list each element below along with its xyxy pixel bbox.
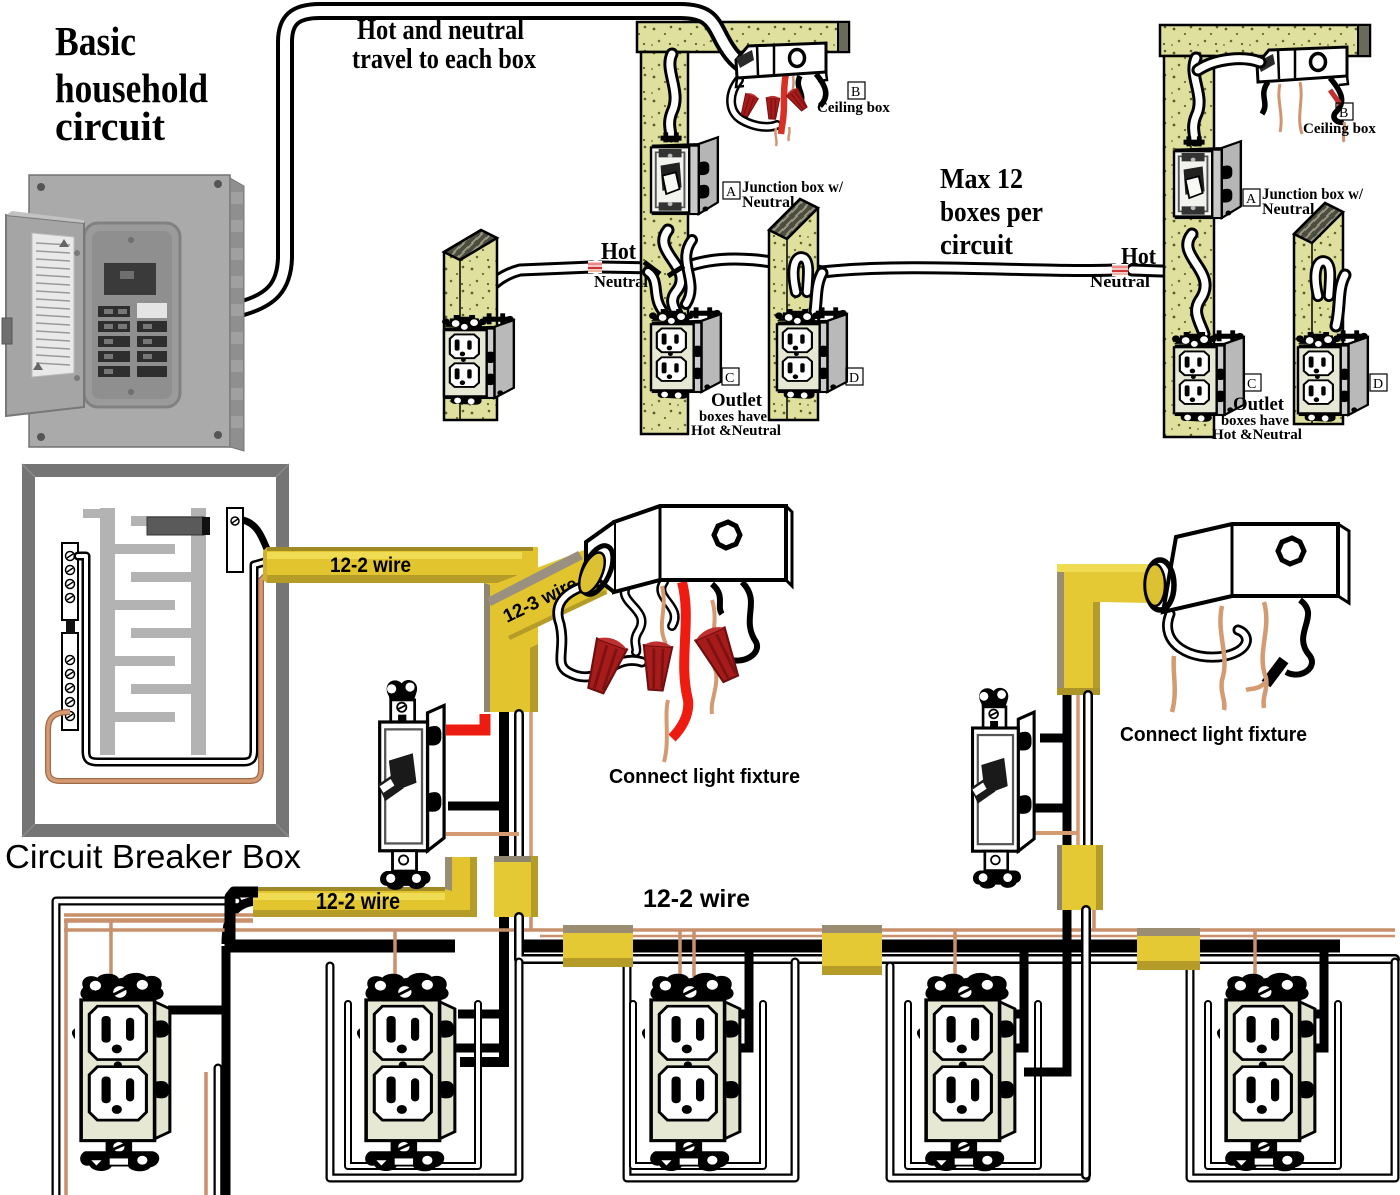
svg-text:D: D (849, 371, 859, 386)
svg-text:C: C (1247, 377, 1256, 392)
svg-text:A: A (726, 185, 737, 200)
svg-text:Hot: Hot (1121, 244, 1156, 270)
svg-text:Neutral: Neutral (742, 194, 795, 211)
svg-text:12-2 wire: 12-2 wire (643, 885, 750, 913)
svg-text:Max 12: Max 12 (940, 164, 1023, 195)
svg-text:Connect light fixture: Connect light fixture (1120, 723, 1307, 746)
svg-text:D: D (1373, 377, 1383, 392)
svg-text:12-2 wire: 12-2 wire (316, 888, 400, 914)
svg-text:Connect light fixture: Connect light fixture (609, 765, 800, 788)
svg-text:Ceiling box: Ceiling box (1303, 121, 1376, 137)
svg-text:Ceiling box: Ceiling box (817, 100, 890, 116)
svg-text:C: C (725, 371, 734, 386)
svg-text:circuit: circuit (940, 230, 1014, 261)
svg-text:circuit: circuit (55, 103, 165, 149)
svg-text:Basic: Basic (55, 18, 136, 64)
svg-text:A: A (1246, 192, 1257, 207)
svg-text:boxes per: boxes per (940, 197, 1043, 228)
svg-text:Circuit Breaker Box: Circuit Breaker Box (5, 838, 302, 875)
svg-text:Hot &Neutral: Hot &Neutral (691, 423, 781, 439)
svg-text:B: B (1339, 106, 1348, 121)
svg-text:B: B (851, 85, 860, 100)
svg-text:Outlet: Outlet (1233, 394, 1285, 415)
svg-text:Neutral: Neutral (594, 272, 648, 291)
svg-text:Hot and neutral: Hot and neutral (357, 15, 524, 46)
svg-text:travel to each box: travel to each box (352, 44, 536, 75)
svg-text:Outlet: Outlet (711, 390, 763, 411)
svg-text:Hot &Neutral: Hot &Neutral (1212, 427, 1302, 443)
svg-text:Hot: Hot (601, 239, 636, 265)
svg-text:12-2 wire: 12-2 wire (330, 554, 411, 577)
svg-text:Neutral: Neutral (1262, 201, 1315, 218)
svg-text:Neutral: Neutral (1090, 272, 1150, 291)
